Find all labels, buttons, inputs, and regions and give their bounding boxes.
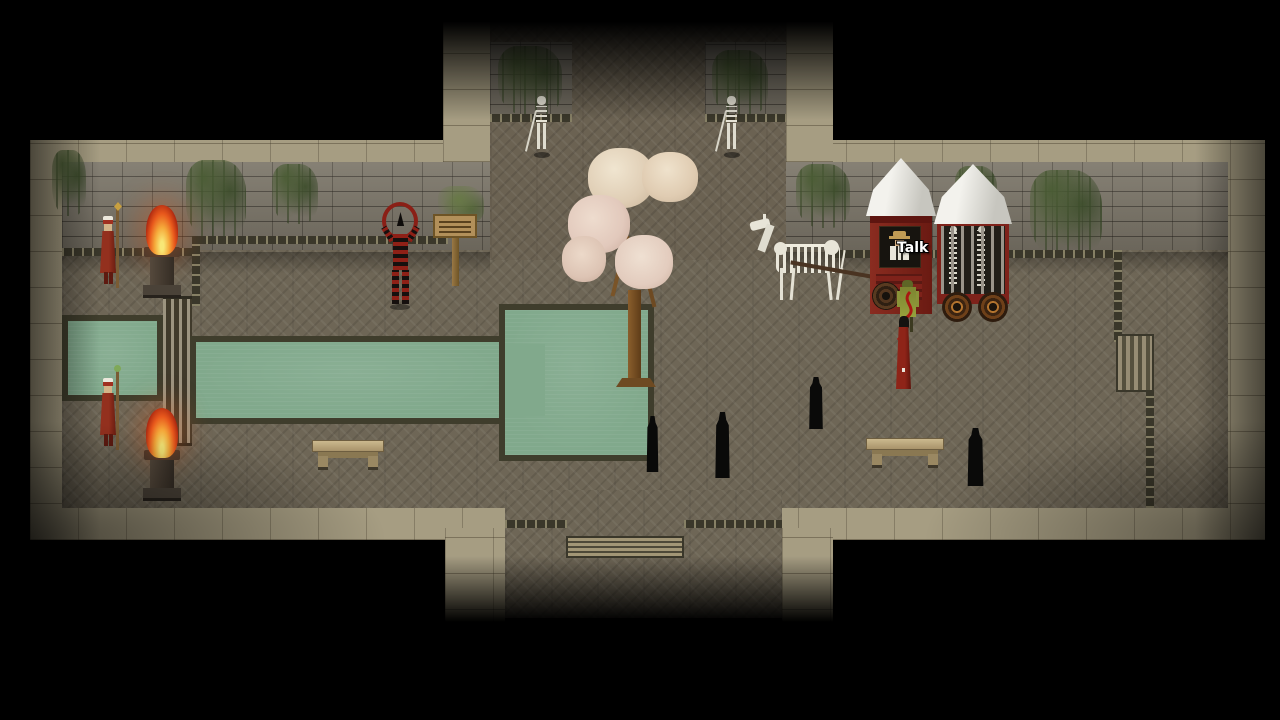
signpost <box>433 214 479 288</box>
cart-wheel <box>942 292 972 322</box>
corner-shadow <box>30 420 390 540</box>
hud-bar: 10 0 0 0 0 0 <box>0 650 1280 720</box>
pool-water-join <box>505 344 545 416</box>
tree-foliage <box>615 235 673 289</box>
red-robed-npc <box>893 316 915 398</box>
cart-wheel <box>978 292 1008 322</box>
pool-channel <box>190 336 511 424</box>
tree <box>560 140 720 392</box>
cage-tent-roof <box>934 164 1012 224</box>
platform-edge <box>1114 250 1122 342</box>
vines <box>272 164 318 224</box>
ledge-trim <box>192 236 200 306</box>
tree-foliage <box>642 152 698 202</box>
vines <box>186 160 246 240</box>
game-viewport[interactable]: Talk <box>0 0 1280 650</box>
talk-prompt[interactable]: Talk <box>897 240 928 256</box>
sign-board <box>433 214 477 238</box>
vendor-tent-roof <box>866 158 936 216</box>
fire <box>146 205 178 255</box>
vines <box>1030 170 1102 260</box>
stairs-right <box>1116 334 1154 392</box>
corridor-darkness <box>440 556 836 650</box>
staff-orb <box>114 365 121 372</box>
corridor-darkness <box>438 0 838 120</box>
stairs-bottom <box>566 536 684 558</box>
corner-shadow <box>920 420 1265 540</box>
ledge-trim <box>505 520 567 528</box>
game-window: Talk 10 0 0 0 0 <box>0 0 1280 720</box>
tree-foliage <box>562 236 606 282</box>
cultist-npc <box>382 200 420 322</box>
cage-cart <box>934 164 1012 330</box>
ledge-trim <box>684 520 782 528</box>
brazier <box>138 205 186 299</box>
skeleton-horse <box>750 212 872 308</box>
